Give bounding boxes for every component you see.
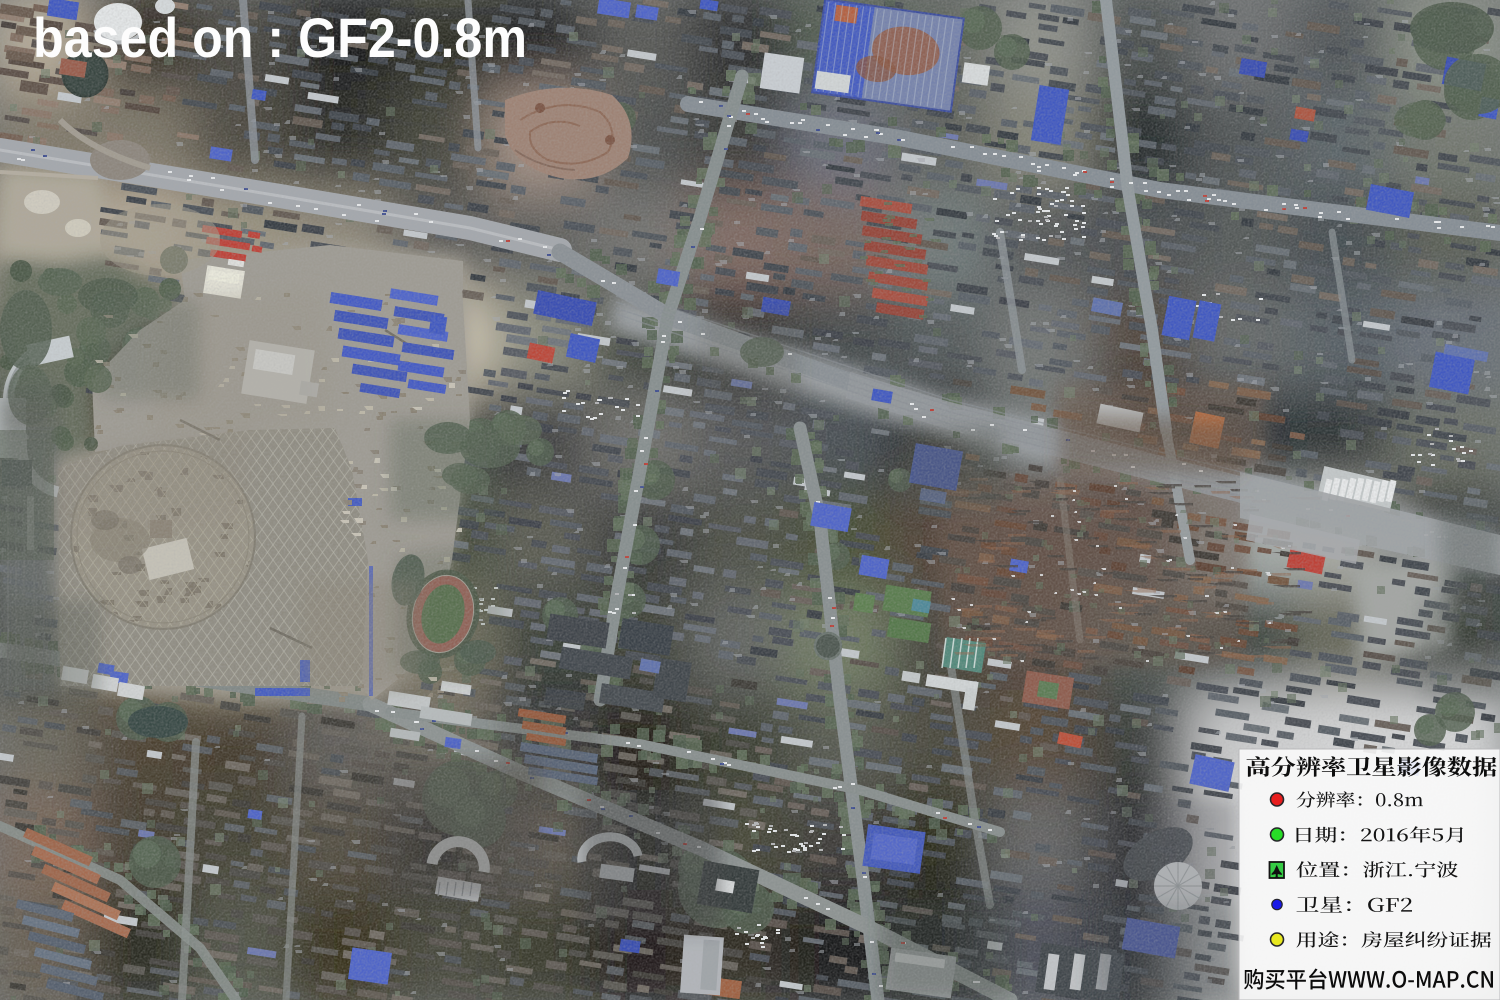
svg-text:based on : GF2-0.8m: based on : GF2-0.8m: [33, 6, 527, 69]
